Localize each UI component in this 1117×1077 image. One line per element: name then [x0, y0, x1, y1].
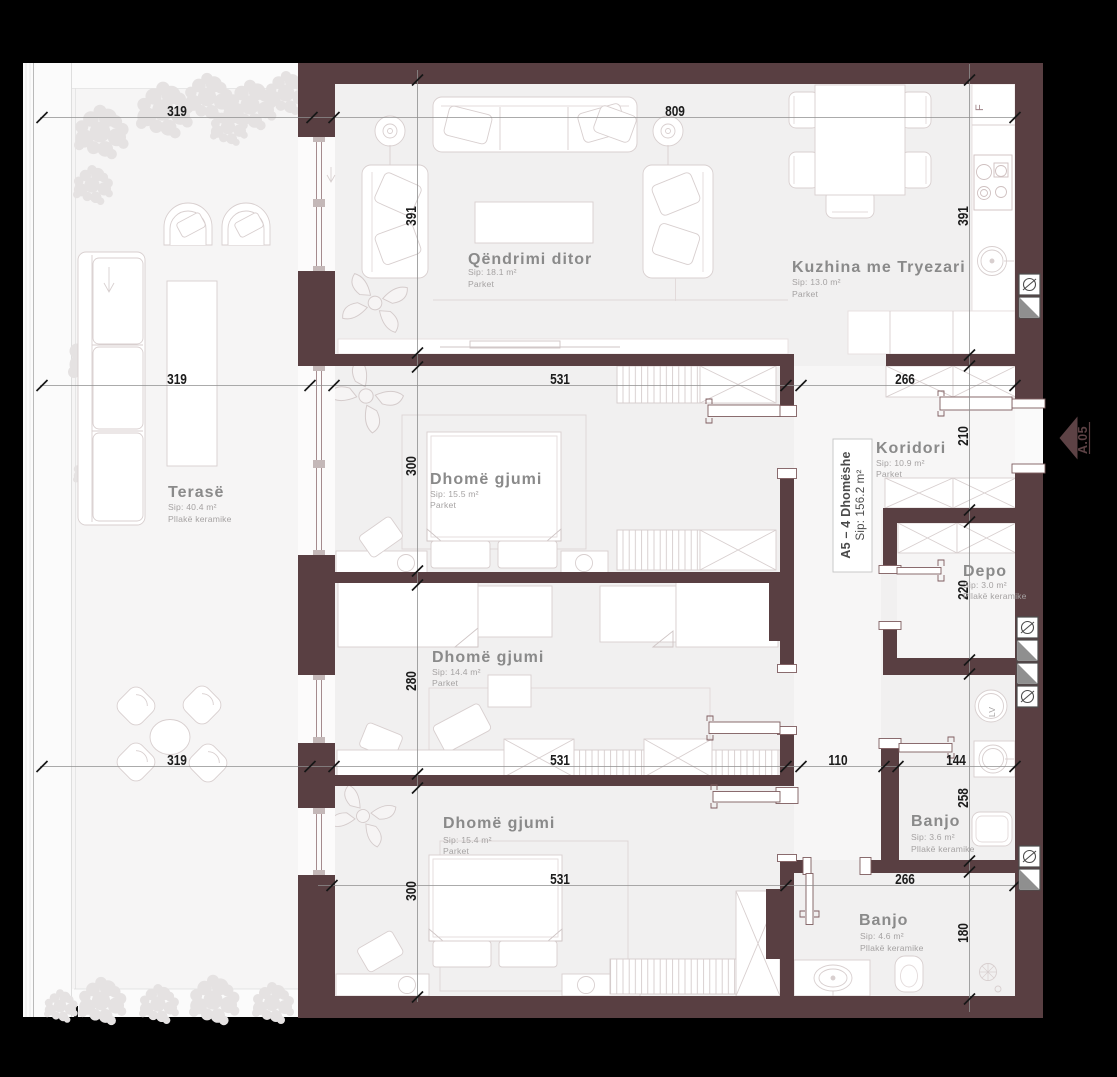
svg-text:Pllakë keramike: Pllakë keramike	[168, 514, 232, 524]
svg-text:Dhomë gjumi: Dhomë gjumi	[430, 471, 542, 488]
svg-text:300: 300	[403, 456, 419, 476]
svg-text:Parket: Parket	[792, 289, 818, 299]
svg-text:Sip: 14.4 m²: Sip: 14.4 m²	[432, 667, 481, 677]
svg-text:Depo: Depo	[963, 563, 1007, 580]
svg-text:280: 280	[403, 671, 419, 691]
svg-text:LV: LV	[987, 707, 997, 717]
svg-text:Parket: Parket	[432, 678, 458, 688]
svg-text:180: 180	[955, 923, 971, 943]
svg-text:531: 531	[550, 871, 570, 887]
svg-text:319: 319	[167, 103, 187, 119]
svg-text:210: 210	[955, 426, 971, 446]
svg-text:A.05: A.05	[1076, 426, 1090, 454]
svg-text:391: 391	[403, 206, 419, 226]
svg-text:Sip: 15.5 m²: Sip: 15.5 m²	[430, 489, 479, 499]
svg-text:Sip: 13.0 m²: Sip: 13.0 m²	[792, 277, 841, 287]
svg-text:A5 – 4 Dhomëshe: A5 – 4 Dhomëshe	[839, 451, 853, 558]
svg-text:Sip: 4.6 m²: Sip: 4.6 m²	[860, 931, 904, 941]
svg-text:Sip: 40.4 m²: Sip: 40.4 m²	[168, 502, 217, 512]
svg-text:Parket: Parket	[430, 500, 456, 510]
svg-text:Parket: Parket	[876, 469, 902, 479]
svg-text:531: 531	[550, 371, 570, 387]
svg-text:Sip: 156.2 m²: Sip: 156.2 m²	[855, 470, 867, 541]
svg-text:Sip: 15.4 m²: Sip: 15.4 m²	[443, 835, 492, 845]
svg-text:266: 266	[895, 371, 915, 387]
svg-text:Parket: Parket	[443, 846, 469, 856]
svg-text:391: 391	[955, 206, 971, 226]
svg-text:Sip: 3.0 m²: Sip: 3.0 m²	[963, 580, 1007, 590]
svg-text:258: 258	[955, 788, 971, 808]
svg-text:F: F	[974, 104, 986, 111]
svg-text:Dhomë gjumi: Dhomë gjumi	[443, 815, 555, 832]
svg-text:144: 144	[946, 752, 966, 768]
svg-text:300: 300	[403, 881, 419, 901]
svg-text:809: 809	[665, 103, 685, 119]
svg-text:Sip: 3.6 m²: Sip: 3.6 m²	[911, 832, 955, 842]
svg-text:Pllakë keramike: Pllakë keramike	[911, 844, 975, 854]
svg-text:319: 319	[167, 752, 187, 768]
svg-text:Dhomë gjumi: Dhomë gjumi	[432, 649, 544, 666]
svg-text:531: 531	[550, 752, 570, 768]
svg-text:Sip: 10.9 m²: Sip: 10.9 m²	[876, 458, 925, 468]
svg-text:Pllakë keramike: Pllakë keramike	[860, 943, 924, 953]
svg-text:Banjo: Banjo	[911, 813, 960, 830]
svg-text:266: 266	[895, 871, 915, 887]
svg-text:Sip: 18.1 m²: Sip: 18.1 m²	[468, 267, 517, 277]
svg-text:Banjo: Banjo	[859, 912, 908, 929]
svg-text:Terasë: Terasë	[168, 484, 224, 501]
svg-text:110: 110	[828, 752, 847, 768]
svg-text:Kuzhina me Tryezari: Kuzhina me Tryezari	[792, 259, 966, 276]
svg-text:Qëndrimi ditor: Qëndrimi ditor	[468, 251, 592, 268]
svg-text:319: 319	[167, 371, 187, 387]
svg-text:Koridori: Koridori	[876, 440, 946, 457]
svg-text:Parket: Parket	[468, 279, 494, 289]
svg-text:Pllakë keramike: Pllakë keramike	[963, 591, 1027, 601]
